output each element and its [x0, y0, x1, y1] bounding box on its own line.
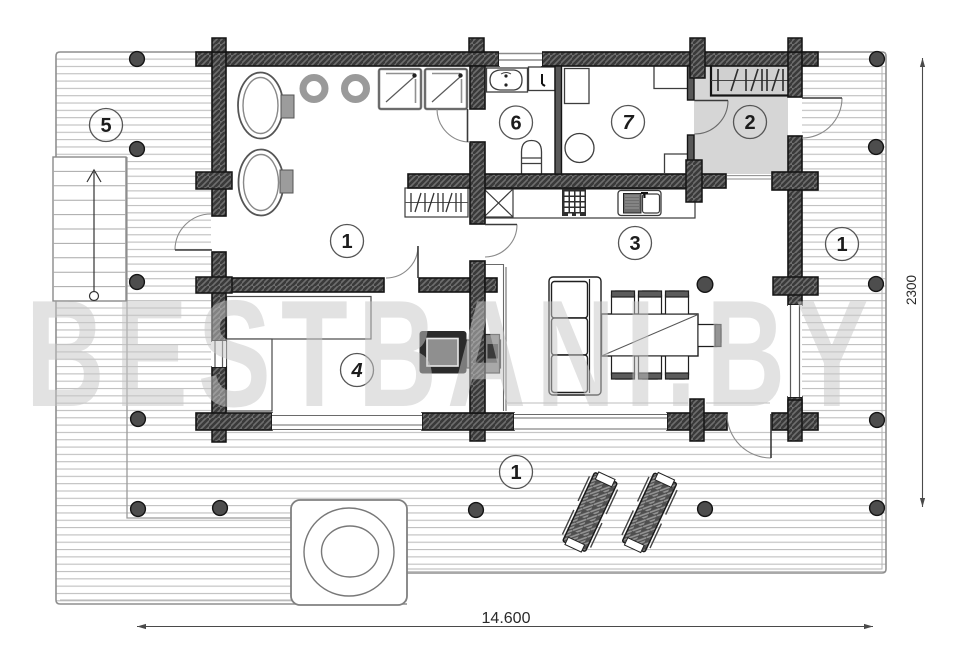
svg-text:5: 5	[100, 115, 111, 137]
svg-text:BESTBANI.BY: BESTBANI.BY	[26, 269, 879, 439]
svg-text:6: 6	[510, 113, 521, 135]
svg-text:3: 3	[629, 233, 640, 255]
svg-text:1: 1	[510, 462, 521, 484]
svg-text:1: 1	[836, 234, 847, 256]
svg-text:2300: 2300	[904, 275, 919, 305]
svg-text:14.600: 14.600	[482, 610, 531, 627]
svg-text:1: 1	[341, 231, 352, 253]
svg-text:2: 2	[744, 112, 755, 134]
svg-text:7: 7	[622, 112, 634, 134]
